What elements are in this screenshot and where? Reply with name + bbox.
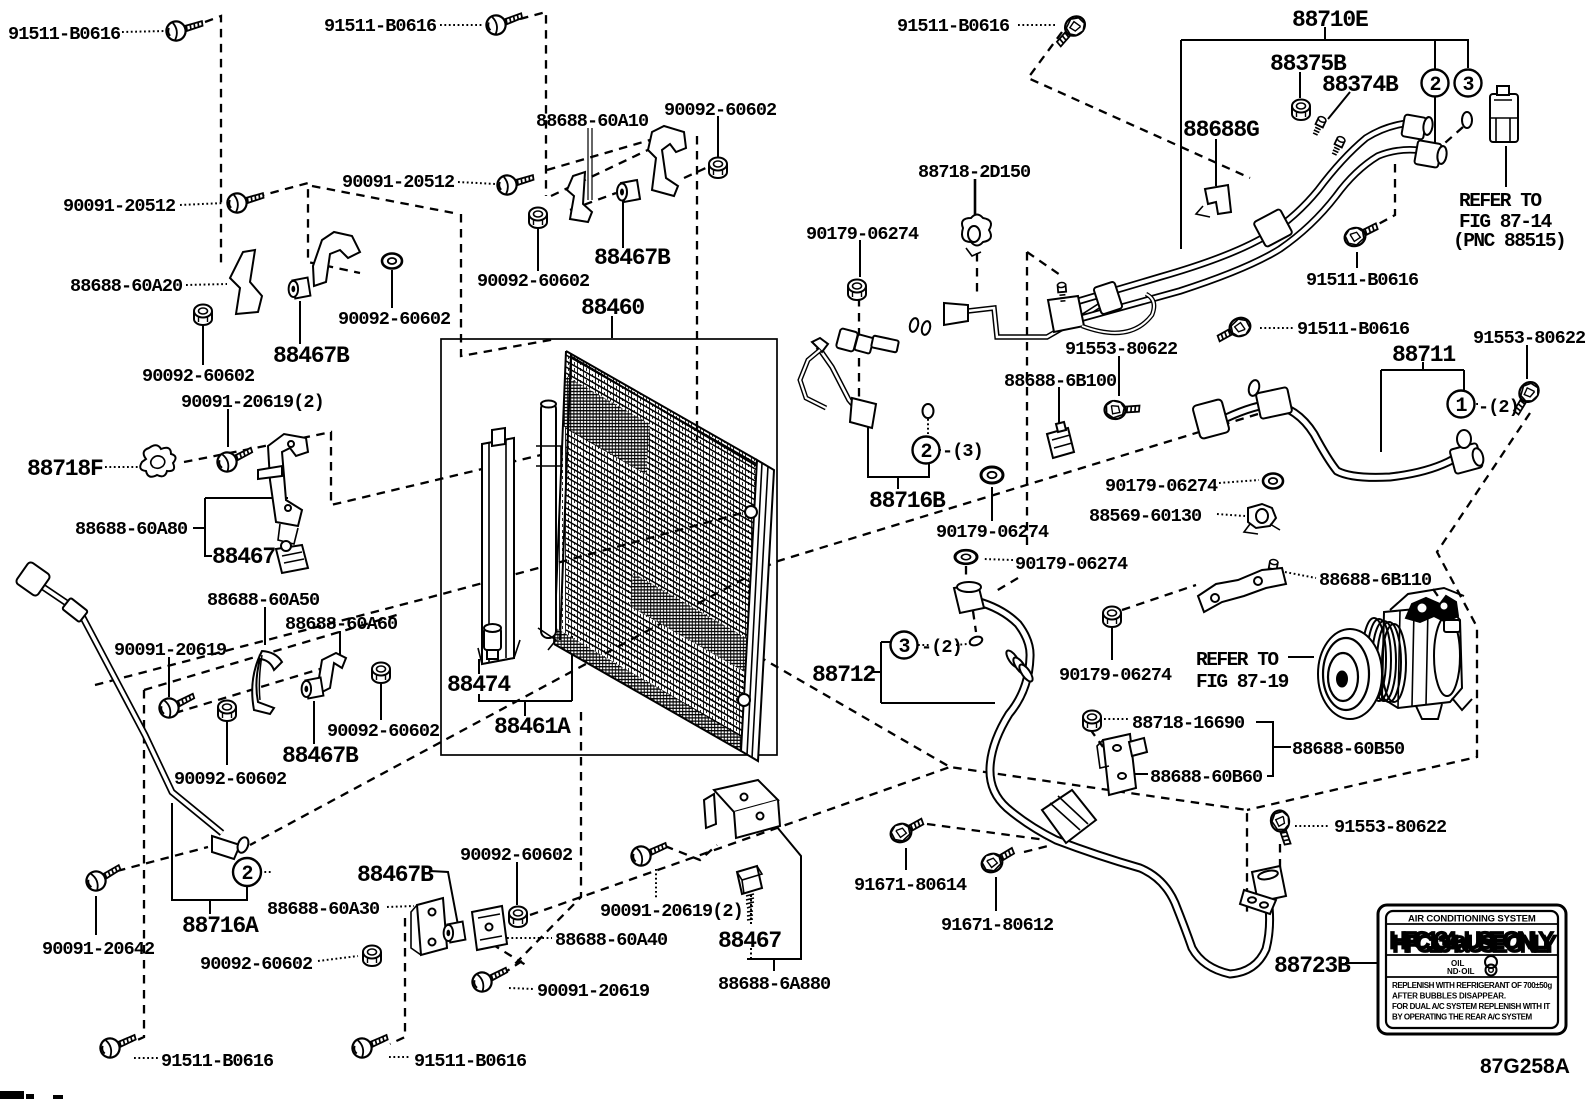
svg-text:2: 2 [1430,74,1442,97]
svg-text:-(2): -(2) [1478,397,1519,418]
svg-text:88467: 88467 [718,928,781,954]
svg-text:2: 2 [242,863,254,886]
svg-text:88460: 88460 [581,295,644,321]
svg-text:88467B: 88467B [282,743,359,769]
svg-text:88723B: 88723B [1274,953,1351,979]
svg-text:90091-20619: 90091-20619 [114,640,226,661]
svg-text:90179-06274: 90179-06274 [1105,476,1218,497]
svg-text:91511-B0616: 91511-B0616 [1306,270,1419,291]
svg-text:90091-20619: 90091-20619 [537,981,649,1002]
svg-text:-(2): -(2) [921,637,962,658]
svg-text:90091-20619(2): 90091-20619(2) [600,901,743,922]
svg-text:91511-B0616: 91511-B0616 [161,1051,274,1072]
svg-text:90091-20512: 90091-20512 [342,172,455,193]
svg-text:3: 3 [899,636,911,659]
svg-text:90092-60602: 90092-60602 [477,271,590,292]
svg-text:88688-60A10: 88688-60A10 [536,111,649,132]
svg-text:90091-20512: 90091-20512 [63,196,176,217]
svg-text:88688G: 88688G [1183,117,1259,143]
svg-text:90091-20642: 90091-20642 [42,939,155,960]
svg-text:88467B: 88467B [357,862,434,888]
svg-text:BY OPERATING THE REAR A/C SYST: BY OPERATING THE REAR A/C SYSTEM [1392,1013,1533,1022]
svg-text:88712: 88712 [812,662,875,688]
svg-text:90179-06274: 90179-06274 [806,224,919,245]
svg-text:88688-60A40: 88688-60A40 [555,930,668,951]
svg-text:88718F: 88718F [27,456,103,482]
svg-text:91553-80622: 91553-80622 [1473,328,1586,349]
svg-text:88718-2D150: 88718-2D150 [918,162,1031,183]
svg-text:REFER TO: REFER TO [1459,190,1542,212]
svg-text:HFC134a USE ONLY: HFC134a USE ONLY [1392,931,1558,959]
svg-text:88461A: 88461A [494,714,571,740]
svg-text:88688-60A20: 88688-60A20 [70,276,183,297]
svg-text:91671-80612: 91671-80612 [941,915,1054,936]
svg-text:88688-6B100: 88688-6B100 [1004,371,1117,392]
svg-text:1: 1 [1456,395,1468,418]
svg-text:88467B: 88467B [594,245,671,271]
svg-text:91671-80614: 91671-80614 [854,875,967,896]
svg-text:FOR DUAL A/C SYSTEM REPLENISH: FOR DUAL A/C SYSTEM REPLENISH WITH IT [1392,1002,1550,1011]
svg-text:AIR CONDITIONING SYSTEM: AIR CONDITIONING SYSTEM [1408,914,1536,925]
svg-text:88718-16690: 88718-16690 [1132,713,1245,734]
svg-text:90179-06274: 90179-06274 [1059,665,1172,686]
svg-text:91511-B0616: 91511-B0616 [8,24,121,45]
svg-text:2: 2 [921,441,933,464]
svg-text:88467B: 88467B [273,343,350,369]
svg-text:AFTER BUBBLES DISAPPEAR.: AFTER BUBBLES DISAPPEAR. [1392,992,1506,1001]
svg-text:88467: 88467 [212,544,275,570]
svg-text:87G258A: 87G258A [1480,1055,1570,1078]
svg-text:-(3): -(3) [942,441,983,462]
svg-text:88716B: 88716B [869,488,946,514]
svg-text:REPLENISH WITH REFRIGERANT OF: REPLENISH WITH REFRIGERANT OF 700±50g [1392,981,1552,990]
svg-text:88688-60B60: 88688-60B60 [1150,767,1263,788]
svg-text:88688-6A880: 88688-6A880 [718,974,831,995]
svg-text:90092-60602: 90092-60602 [338,309,451,330]
svg-text:90092-60602: 90092-60602 [142,366,255,387]
svg-text:(PNC 88515): (PNC 88515) [1453,230,1565,252]
svg-text:90179-06274: 90179-06274 [936,522,1049,543]
svg-text:90092-60602: 90092-60602 [460,845,573,866]
svg-text:90092-60602: 90092-60602 [174,769,287,790]
svg-text:FIG 87-19: FIG 87-19 [1196,671,1289,693]
svg-text:91553-80622: 91553-80622 [1065,339,1178,360]
svg-text:88688-60A80: 88688-60A80 [75,519,188,540]
svg-text:90092-60602: 90092-60602 [200,954,313,975]
svg-text:91511-B0616: 91511-B0616 [324,16,437,37]
svg-text:88716A: 88716A [182,913,259,939]
svg-text:88688-60B50: 88688-60B50 [1292,739,1405,760]
svg-text:90092-60602: 90092-60602 [664,100,777,121]
svg-text:3: 3 [1463,74,1475,97]
svg-text:REFER TO: REFER TO [1196,649,1279,671]
svg-text:88688-6B110: 88688-6B110 [1319,570,1432,591]
svg-text:90179-06274: 90179-06274 [1015,554,1128,575]
svg-text:88474: 88474 [447,672,511,698]
svg-text:88688-60A30: 88688-60A30 [267,899,380,920]
svg-text:91553-80622: 91553-80622 [1334,817,1447,838]
svg-text:ND·OIL: ND·OIL [1447,967,1475,976]
svg-text:91511-B0616: 91511-B0616 [897,16,1010,37]
svg-text:91511-B0616: 91511-B0616 [414,1051,527,1072]
svg-text:88374B: 88374B [1322,72,1399,98]
svg-text:90091-20619(2): 90091-20619(2) [181,392,324,413]
svg-text:88569-60130: 88569-60130 [1089,506,1202,527]
svg-text:88688-60A60: 88688-60A60 [285,614,398,635]
svg-text:88710E: 88710E [1292,7,1368,33]
svg-text:88711: 88711 [1392,342,1455,368]
svg-text:90092-60602: 90092-60602 [327,721,440,742]
svg-text:88688-60A50: 88688-60A50 [207,590,320,611]
svg-text:91511-B0616: 91511-B0616 [1297,319,1410,340]
